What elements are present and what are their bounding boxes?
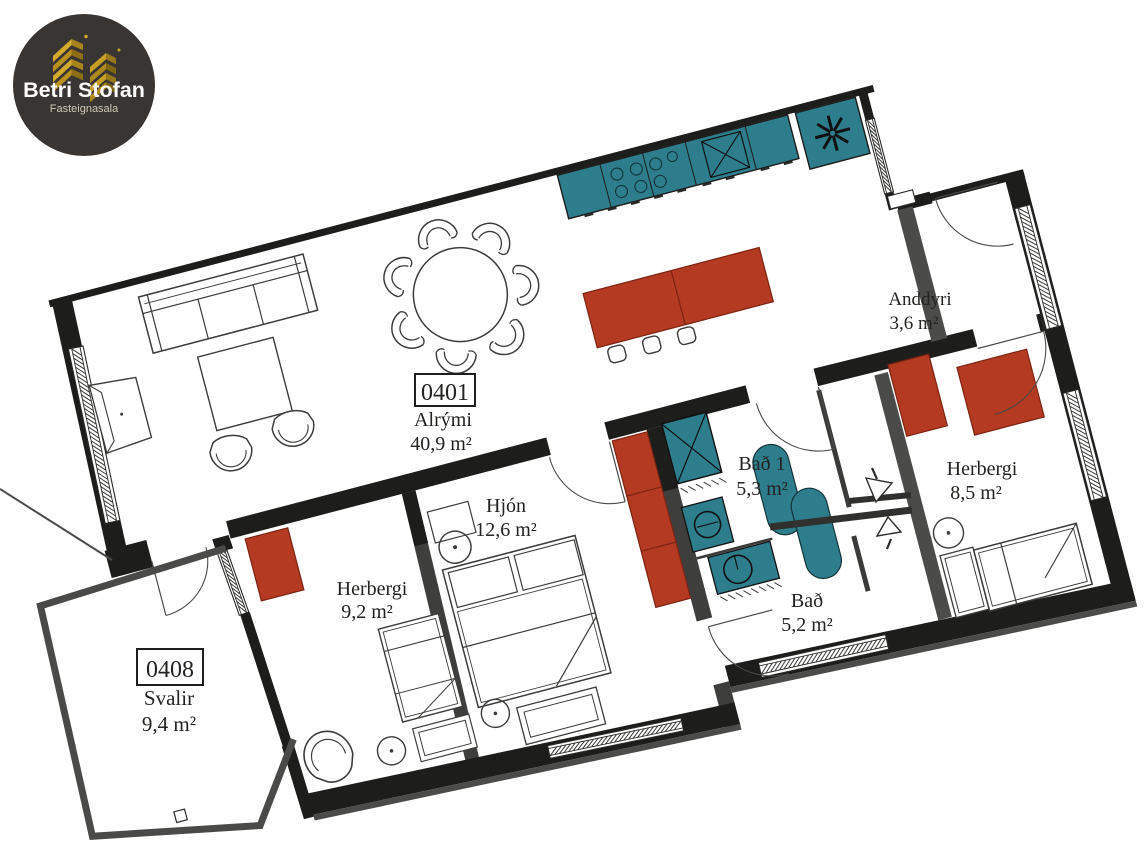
svg-text:Bað 1: Bað 1 — [738, 453, 785, 475]
svg-text:Betri Stofan: Betri Stofan — [23, 78, 145, 102]
svg-text:Herbergi: Herbergi — [337, 578, 408, 600]
svg-text:Anddyri: Anddyri — [888, 289, 951, 310]
svg-text:Alrými: Alrými — [414, 409, 472, 431]
svg-text:40,9 m²: 40,9 m² — [410, 433, 472, 455]
svg-text:5,3 m²: 5,3 m² — [736, 478, 788, 500]
svg-text:12,6 m²: 12,6 m² — [475, 519, 537, 541]
svg-text:5,2 m²: 5,2 m² — [781, 614, 833, 636]
svg-text:3,6 m²: 3,6 m² — [890, 313, 939, 334]
svg-text:Hjón: Hjón — [486, 495, 526, 517]
svg-text:0401: 0401 — [421, 380, 469, 406]
svg-text:8,5 m²: 8,5 m² — [950, 482, 1002, 504]
svg-text:0408: 0408 — [146, 657, 194, 683]
svg-text:Herbergi: Herbergi — [947, 458, 1018, 480]
svg-text:Svalir: Svalir — [144, 686, 194, 710]
svg-text:9,4 m²: 9,4 m² — [142, 712, 196, 736]
svg-text:Fasteignasala: Fasteignasala — [50, 103, 119, 115]
svg-text:Bað: Bað — [791, 590, 823, 612]
svg-text:9,2 m²: 9,2 m² — [341, 601, 393, 623]
